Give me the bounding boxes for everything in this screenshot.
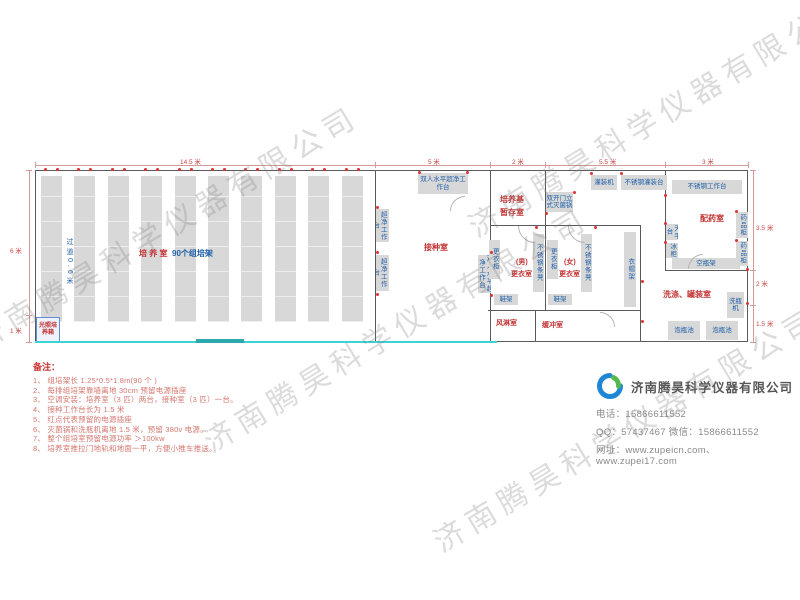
dimension-label: 6 米 xyxy=(10,245,22,255)
note-item-4: 4、 接种工作台长为 1.5 米 xyxy=(33,405,353,415)
wall-segment xyxy=(35,170,748,171)
equipment-box: 双人水平超净工作台 xyxy=(376,255,389,291)
dimension-label: 3 米 xyxy=(702,156,714,166)
power-socket-dot xyxy=(664,222,667,225)
room-label: 培养基 xyxy=(500,194,524,205)
power-socket-dot xyxy=(466,171,469,174)
note-item-6: 6、 灭菌锅和洗瓶机离地 1.5 米，预留 380v 电源。 xyxy=(33,425,353,435)
dimension-tick xyxy=(750,342,756,343)
power-socket-dot xyxy=(223,168,226,171)
dimension-label: 5 米 xyxy=(428,156,440,166)
power-socket-dot xyxy=(123,168,126,171)
power-socket-dot xyxy=(418,171,421,174)
company-info: 济南腾昊科学仪器有限公司 电话：15866611552 QQ：57437467 … xyxy=(596,372,796,467)
dimension-tick xyxy=(26,342,32,343)
note-item-7: 7、 整个组培室预留电源功率 ＞100kw xyxy=(33,434,353,444)
equipment-box: 更衣柜 xyxy=(547,240,558,279)
power-socket-dot xyxy=(641,320,644,323)
room-label: 90个组培架 xyxy=(172,248,213,259)
dimension-label: 14.5 米 xyxy=(180,156,201,166)
door-arc xyxy=(600,312,615,327)
room-label: 洗涤、罐装室 xyxy=(663,289,711,300)
room-label: (男) xyxy=(516,257,528,267)
equipment-box: 灌装机 xyxy=(591,175,617,190)
rack-column xyxy=(308,176,329,322)
power-socket-dot xyxy=(664,241,667,244)
power-socket-dot xyxy=(211,168,214,171)
dimension-line-left xyxy=(29,170,30,342)
floor-line xyxy=(35,341,497,343)
wall-segment xyxy=(490,225,641,226)
note-item-1: 1、 组培架长 1.25*0.5*1.8m(90 个 ) xyxy=(33,376,353,386)
power-socket-dot xyxy=(620,172,623,175)
power-socket-dot xyxy=(590,172,593,175)
equipment-box: 冰柜 xyxy=(666,243,678,258)
company-logo-icon xyxy=(596,372,624,400)
dimension-tick xyxy=(35,162,36,168)
door-arc xyxy=(450,196,465,211)
dimension-label: 5.5 米 xyxy=(599,156,616,166)
room-label: 配药室 xyxy=(700,213,724,224)
floorplan-drawing: 过道0.6米光照培养箱双人水平超净工作台双人水平超净工作台双人水平超净工作台双人… xyxy=(0,0,800,600)
company-header: 济南腾昊科学仪器有限公司 xyxy=(596,372,796,400)
power-socket-dot xyxy=(357,168,360,171)
floorplan-page: 过道0.6米光照培养箱双人水平超净工作台双人水平超净工作台双人水平超净工作台双人… xyxy=(0,0,800,600)
dimension-line-right xyxy=(753,170,754,342)
note-item-5: 5、 红点代表预留的电源插座 xyxy=(33,415,353,425)
room-label: 接种室 xyxy=(424,242,448,253)
power-socket-dot xyxy=(56,168,59,171)
equipment-box: 天平台 xyxy=(666,224,678,240)
company-phone: 电话：15866611552 xyxy=(596,406,796,420)
dimension-tick xyxy=(26,170,32,171)
power-socket-dot xyxy=(190,168,193,171)
equipment-box: 药品柜 xyxy=(736,212,748,238)
dimension-tick xyxy=(26,315,32,316)
dimension-line-top xyxy=(35,165,748,166)
equipment-box: 双人水平超净工作台 xyxy=(376,209,389,242)
dimension-label: 3.5 米 xyxy=(756,222,773,232)
power-socket-dot xyxy=(490,251,493,254)
company-qq-wechat: QQ：57437467 微信：15866611552 xyxy=(596,424,796,438)
note-item-2: 2、 每排组培架靠墙离地 30cm 预留电源插座 xyxy=(33,386,353,396)
dimension-tick xyxy=(750,170,756,171)
power-socket-dot xyxy=(376,251,379,254)
power-socket-dot xyxy=(573,191,576,194)
dimension-label: 1.5 米 xyxy=(756,318,773,328)
room-label: 暂存室 xyxy=(500,207,524,218)
room-label: 风淋室 xyxy=(496,318,517,328)
dimension-tick xyxy=(750,270,756,271)
wall-segment xyxy=(488,310,641,311)
room-label: 更衣室 xyxy=(511,269,532,279)
equipment-box: 鞋架 xyxy=(548,294,572,305)
power-socket-dot xyxy=(345,168,348,171)
dimension-tick xyxy=(665,162,666,168)
equipment-box: 不锈钢灌装台 xyxy=(621,175,667,190)
equipment-box: 双人水平超净工作台 xyxy=(418,173,468,194)
power-socket-dot xyxy=(746,268,749,271)
dimension-label: 2 米 xyxy=(512,156,524,166)
door-arc xyxy=(568,226,585,243)
notes-section: 备注： 1、 组培架长 1.25*0.5*1.8m(90 个 ) 2、 每排组培… xyxy=(33,360,353,454)
equipment-box: 泡瓶池 xyxy=(668,321,700,340)
power-socket-dot xyxy=(290,168,293,171)
dimension-tick xyxy=(750,305,756,306)
rack-column xyxy=(342,176,363,322)
power-socket-dot xyxy=(735,239,738,242)
power-socket-dot xyxy=(594,226,597,229)
note-item-3: 3、 空调安装：培养室（3 匹）两台，接种室（3 匹）一台。 xyxy=(33,395,353,405)
power-socket-dot xyxy=(535,226,538,229)
company-website: 网址：www.zupeicn.com、www.zupei17.com xyxy=(596,442,796,467)
rack-column xyxy=(41,176,62,322)
power-socket-dot xyxy=(44,168,47,171)
power-socket-dot xyxy=(376,206,379,209)
dimension-tick xyxy=(490,162,491,168)
power-socket-dot xyxy=(545,212,548,215)
power-socket-dot xyxy=(178,168,181,171)
rack-column xyxy=(108,176,129,322)
dimension-tick xyxy=(748,162,749,168)
aisle-width-label: 过道0.6米 xyxy=(64,238,74,304)
door-arc xyxy=(518,226,535,243)
equipment-box: 空瓶架 xyxy=(672,258,740,269)
power-socket-dot xyxy=(746,302,749,305)
power-socket-dot xyxy=(278,168,281,171)
power-socket-dot xyxy=(735,210,738,213)
room-label: 缓冲室 xyxy=(542,320,563,330)
wall-segment xyxy=(535,310,536,342)
wall-segment xyxy=(640,225,641,342)
equipment-box: 鞋架 xyxy=(494,294,518,305)
dimension-label: 2 米 xyxy=(756,278,768,288)
rack-column xyxy=(74,176,95,322)
notes-title: 备注： xyxy=(33,360,353,373)
note-item-8: 8、 培养室推拉门地轨和地面一平，方便小推车推送。 xyxy=(33,444,353,454)
dimension-label: 1 米 xyxy=(10,325,22,335)
wall-segment xyxy=(665,270,748,271)
dimension-tick xyxy=(375,162,376,168)
wall-segment xyxy=(545,225,546,311)
equipment-box: 不锈钢工作台 xyxy=(672,180,742,194)
power-socket-dot xyxy=(376,293,379,296)
equipment-box: 衣帽架 xyxy=(624,232,636,307)
power-socket-dot xyxy=(664,194,667,197)
dimension-tick xyxy=(545,162,546,168)
sliding-door xyxy=(196,339,244,343)
company-name: 济南腾昊科学仪器有限公司 xyxy=(631,377,793,396)
power-socket-dot xyxy=(641,280,644,283)
rack-column xyxy=(275,176,296,322)
equipment-box: 双开门立式灭菌锅 xyxy=(546,192,573,212)
room-label: 更衣室 xyxy=(559,269,580,279)
door-arc xyxy=(688,254,703,269)
room-label: (女) xyxy=(564,257,576,267)
power-socket-dot xyxy=(490,294,493,297)
rack-column xyxy=(241,176,262,322)
equipment-box: 光照培养箱 xyxy=(36,317,60,343)
equipment-box: 更衣柜 xyxy=(489,240,500,279)
power-socket-dot xyxy=(111,168,114,171)
room-label: 培 养 室 xyxy=(139,248,167,259)
equipment-box: 泡瓶池 xyxy=(706,321,738,340)
equipment-box: 洗瓶机 xyxy=(727,292,744,318)
